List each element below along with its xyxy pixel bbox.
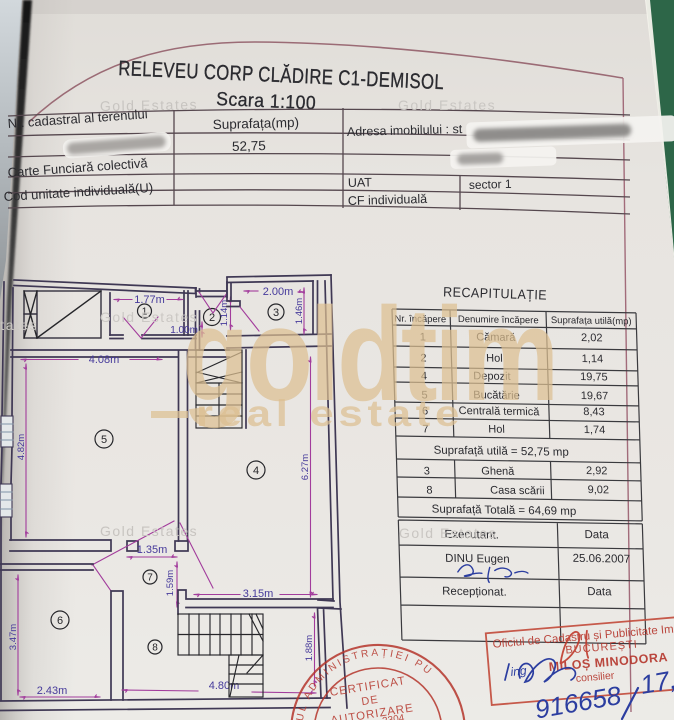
svg-text:ing: ing [510,663,528,679]
svg-text:1.77m: 1.77m [134,294,165,306]
svg-text:Suprafața utilă(mp): Suprafața utilă(mp) [551,315,632,327]
svg-text:2,92: 2,92 [586,465,608,477]
svg-text:DINU Eugen: DINU Eugen [445,553,510,566]
svg-text:1.88m: 1.88m [304,635,315,661]
svg-text:3.15m: 3.15m [243,588,274,600]
svg-text:Suprafață Totală = 64,69 mp: Suprafață Totală = 64,69 mp [432,504,577,518]
svg-text:4: 4 [253,465,259,477]
svg-text:1,14: 1,14 [582,353,604,365]
svg-text:7: 7 [147,573,153,584]
svg-text:4.08m: 4.08m [89,354,120,366]
svg-text:Gold Estates: Gold Estates [398,97,496,113]
svg-text:Gold Estates: Gold Estates [0,317,38,333]
svg-text:3: 3 [424,465,430,477]
svg-text:1.35m: 1.35m [137,544,168,556]
svg-text:19,75: 19,75 [580,371,608,383]
svg-text:4.80m: 4.80m [209,680,240,692]
svg-text:8: 8 [152,643,158,654]
svg-text:6.27m: 6.27m [300,454,311,480]
svg-text:25.06.2007: 25.06.2007 [572,553,630,566]
svg-text:19,67: 19,67 [581,390,609,402]
svg-text:9,02: 9,02 [587,484,609,496]
svg-text:Gold Estates: Gold Estates [399,525,497,541]
svg-text:6: 6 [57,615,63,627]
svg-text:1.59m: 1.59m [165,570,176,596]
svg-text:52,75: 52,75 [232,138,266,154]
svg-text:5: 5 [101,434,107,446]
svg-text:Suprafața(mp): Suprafața(mp) [213,115,300,132]
svg-text:2,02: 2,02 [581,332,603,344]
svg-text:8,43: 8,43 [583,406,605,418]
svg-text:Gold Estates: Gold Estates [100,96,198,114]
svg-text:3.47m: 3.47m [8,624,19,650]
svg-text:8: 8 [426,484,432,496]
svg-text:Data: Data [584,529,609,541]
svg-text:Recepționat.: Recepționat. [442,586,507,599]
svg-text:Data: Data [587,586,612,598]
svg-text:CF individuală: CF individuală [348,192,428,208]
svg-text:Gold Estates: Gold Estates [100,523,198,539]
svg-text:UAT: UAT [348,175,373,190]
svg-text:Suprafață utilă = 52,75 mp: Suprafață utilă = 52,75 mp [433,445,569,459]
svg-text:4.82m: 4.82m [16,434,27,460]
svg-text:Ghenă: Ghenă [481,465,515,478]
svg-text:Casa scării: Casa scării [490,484,545,497]
svg-text:Scara 1:100: Scara 1:100 [216,89,317,114]
svg-text:sector 1: sector 1 [469,177,512,192]
svg-text:1,74: 1,74 [584,424,606,436]
svg-text:2.43m: 2.43m [37,685,68,697]
svg-text:real estate: real estate [196,393,464,434]
